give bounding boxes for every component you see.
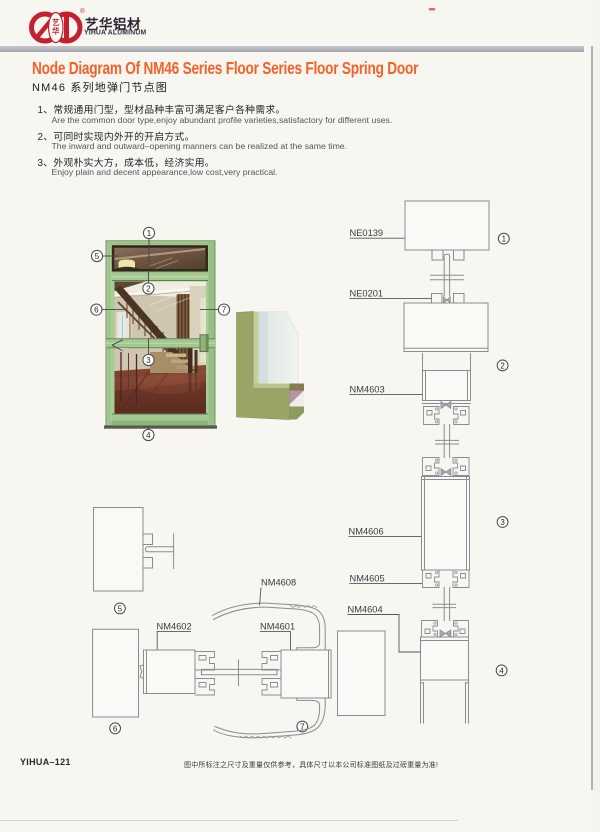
svg-text:NM4605: NM4605: [350, 574, 385, 584]
svg-text:NE0201: NE0201: [350, 289, 384, 299]
svg-text:NM4601: NM4601: [260, 622, 295, 632]
svg-text:3: 3: [500, 518, 505, 527]
svg-text:5: 5: [118, 604, 123, 613]
svg-text:1: 1: [502, 235, 507, 244]
svg-text:NM4604: NM4604: [348, 605, 383, 615]
svg-text:4: 4: [146, 431, 151, 440]
svg-text:1: 1: [147, 229, 152, 238]
svg-text:NM4608: NM4608: [261, 578, 296, 588]
svg-text:2: 2: [500, 361, 505, 370]
svg-text:2: 2: [146, 285, 151, 294]
svg-text:5: 5: [95, 252, 100, 261]
svg-text:6: 6: [113, 724, 118, 733]
svg-text:NM4603: NM4603: [350, 385, 385, 395]
svg-text:6: 6: [94, 306, 99, 315]
svg-text:7: 7: [222, 306, 227, 315]
svg-text:4: 4: [499, 666, 504, 675]
svg-text:NE0139: NE0139: [350, 228, 384, 238]
svg-text:NM4602: NM4602: [157, 622, 192, 632]
svg-text:NM4606: NM4606: [349, 527, 384, 537]
svg-text:3: 3: [146, 356, 151, 365]
